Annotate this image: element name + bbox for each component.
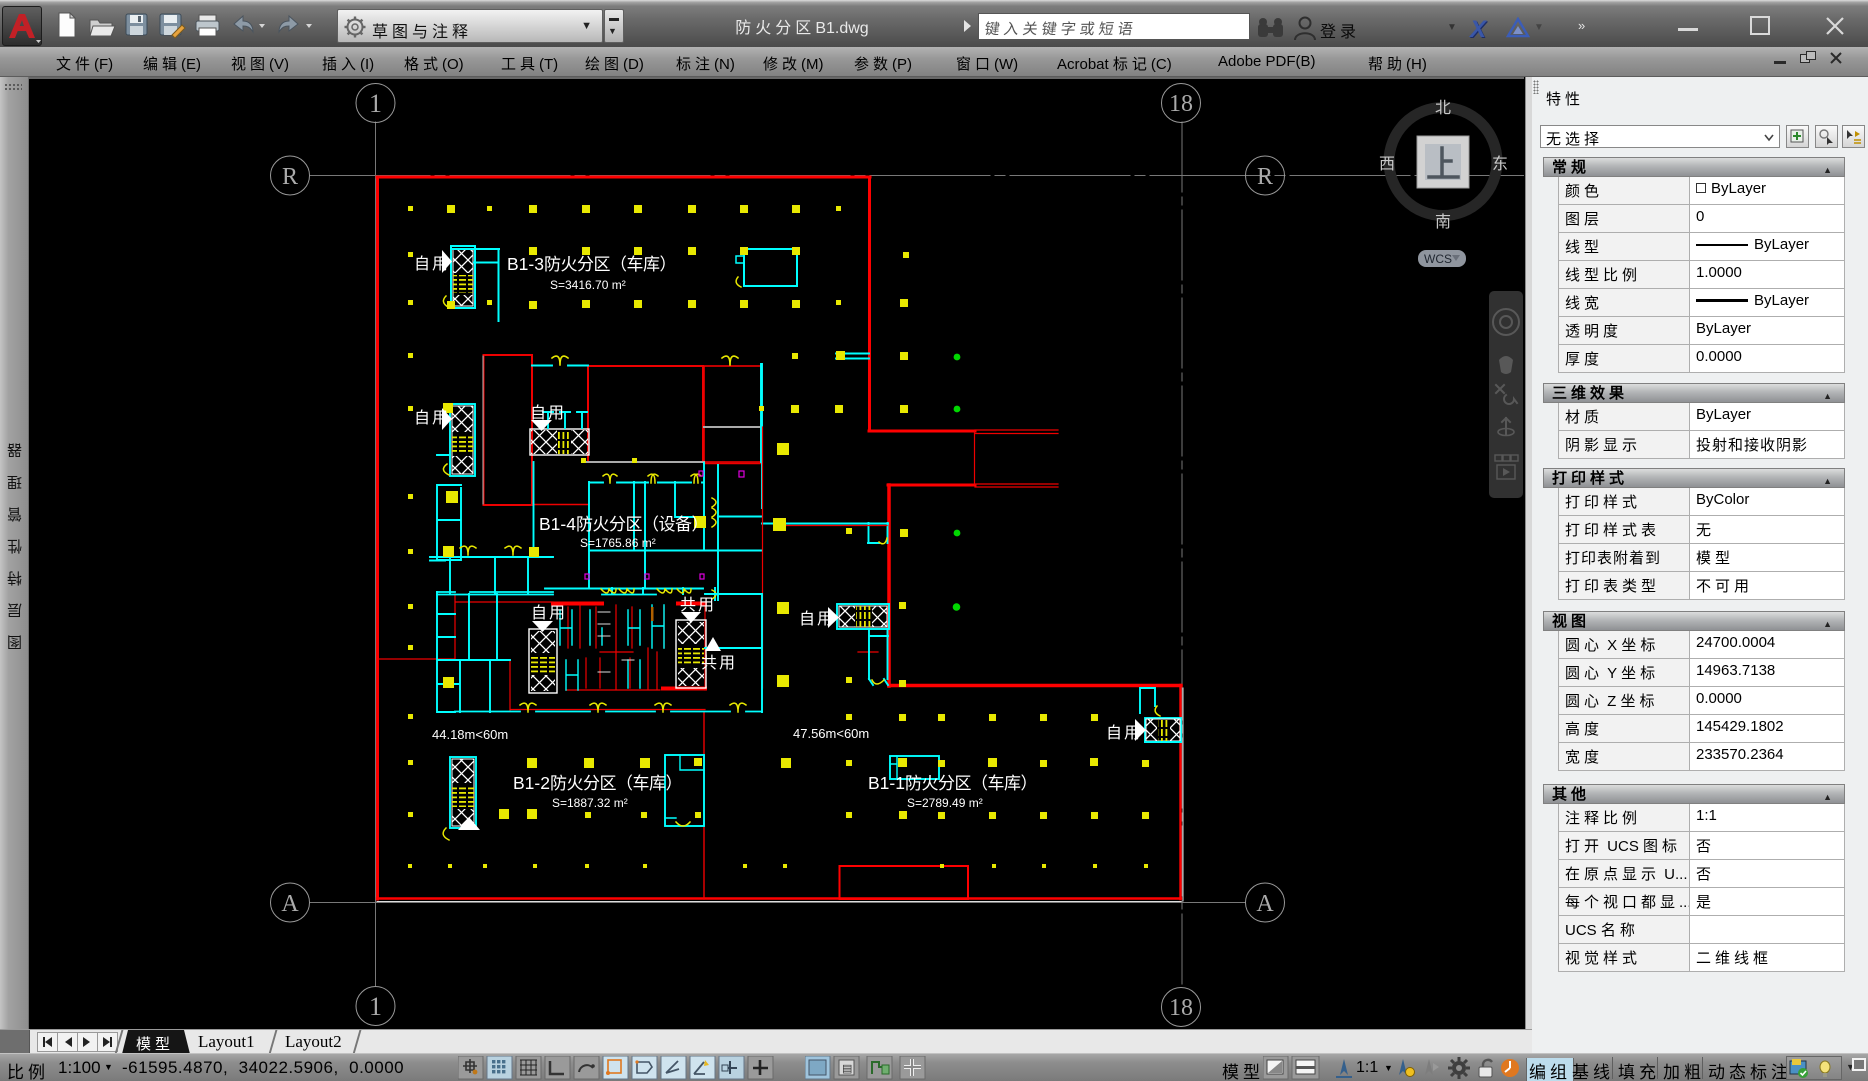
svg-text:WCS: WCS [1424, 252, 1452, 266]
svg-text:B1-4防火分区（设备）: B1-4防火分区（设备） [539, 514, 708, 534]
svg-text:R: R [1257, 164, 1273, 190]
svg-text:44.18m<60m: 44.18m<60m [432, 727, 508, 742]
svg-text:B1-2防火分区（车库）: B1-2防火分区（车库） [513, 773, 682, 793]
svg-text:自用: 自用 [531, 604, 567, 622]
svg-text:A: A [1256, 891, 1274, 917]
svg-text:共用: 共用 [680, 596, 716, 614]
svg-text:北: 北 [1435, 99, 1451, 117]
svg-text:R: R [282, 164, 298, 190]
svg-text:S=3416.70 m²: S=3416.70 m² [550, 278, 626, 292]
svg-text:S=1887.32 m²: S=1887.32 m² [552, 796, 628, 810]
svg-text:A: A [281, 891, 299, 917]
svg-text:18: 18 [1169, 91, 1193, 117]
svg-text:西: 西 [1379, 156, 1395, 173]
svg-text:▤: ▤ [842, 1063, 852, 1075]
svg-text:东: 东 [1492, 155, 1508, 173]
svg-text:S=1765.86 m²: S=1765.86 m² [580, 536, 656, 550]
svg-text:1: 1 [369, 89, 382, 118]
svg-text:1: 1 [369, 992, 382, 1021]
svg-text:南: 南 [1435, 213, 1451, 231]
svg-text:18: 18 [1169, 995, 1193, 1021]
svg-text:自用: 自用 [530, 404, 566, 422]
svg-text:B1-1防火分区（车库）: B1-1防火分区（车库） [868, 773, 1037, 793]
svg-text:共用: 共用 [701, 654, 737, 672]
svg-text:47.56m<60m: 47.56m<60m [793, 726, 869, 741]
svg-text:S=2789.49 m²: S=2789.49 m² [907, 796, 983, 810]
svg-text:B1-3防火分区（车库）: B1-3防火分区（车库） [507, 254, 676, 274]
